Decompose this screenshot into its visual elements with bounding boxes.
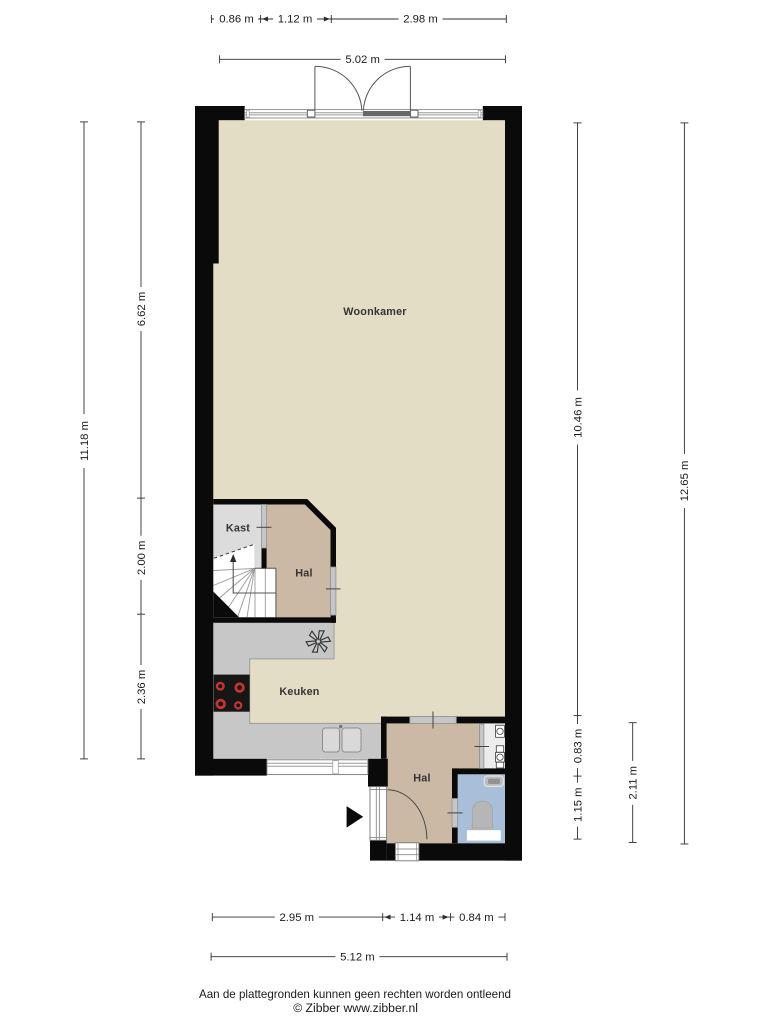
svg-text:2.00 m: 2.00 m (136, 541, 148, 576)
svg-text:2.95 m: 2.95 m (280, 912, 315, 924)
svg-text:0.86 m: 0.86 m (219, 14, 254, 26)
svg-text:12.65 m: 12.65 m (679, 461, 691, 502)
svg-text:5.02 m: 5.02 m (345, 54, 380, 66)
svg-text:0.84 m: 0.84 m (459, 912, 494, 924)
svg-text:1.12 m: 1.12 m (278, 14, 313, 26)
svg-text:Woonkamer: Woonkamer (343, 306, 407, 318)
svg-text:Aan de plattegronden kunnen ge: Aan de plattegronden kunnen geen rechten… (199, 988, 511, 1001)
svg-text:0.83 m: 0.83 m (572, 729, 584, 764)
svg-text:1.14 m: 1.14 m (400, 912, 435, 924)
svg-text:Hal: Hal (413, 773, 430, 785)
svg-text:10.46 m: 10.46 m (572, 397, 584, 438)
svg-text:2.11 m: 2.11 m (628, 766, 640, 800)
svg-text:2.36 m: 2.36 m (136, 670, 148, 705)
svg-text:11.18 m: 11.18 m (79, 421, 91, 461)
svg-text:1.15 m: 1.15 m (572, 787, 584, 822)
svg-text:2.98 m: 2.98 m (403, 14, 438, 26)
svg-text:Hal: Hal (295, 568, 312, 580)
svg-text:6.62 m: 6.62 m (136, 292, 148, 327)
svg-text:Kast: Kast (226, 522, 250, 534)
svg-text:5.12 m: 5.12 m (340, 952, 375, 964)
svg-text:Keuken: Keuken (279, 686, 319, 698)
svg-text:© Zibber www.zibber.nl: © Zibber www.zibber.nl (293, 1001, 418, 1015)
